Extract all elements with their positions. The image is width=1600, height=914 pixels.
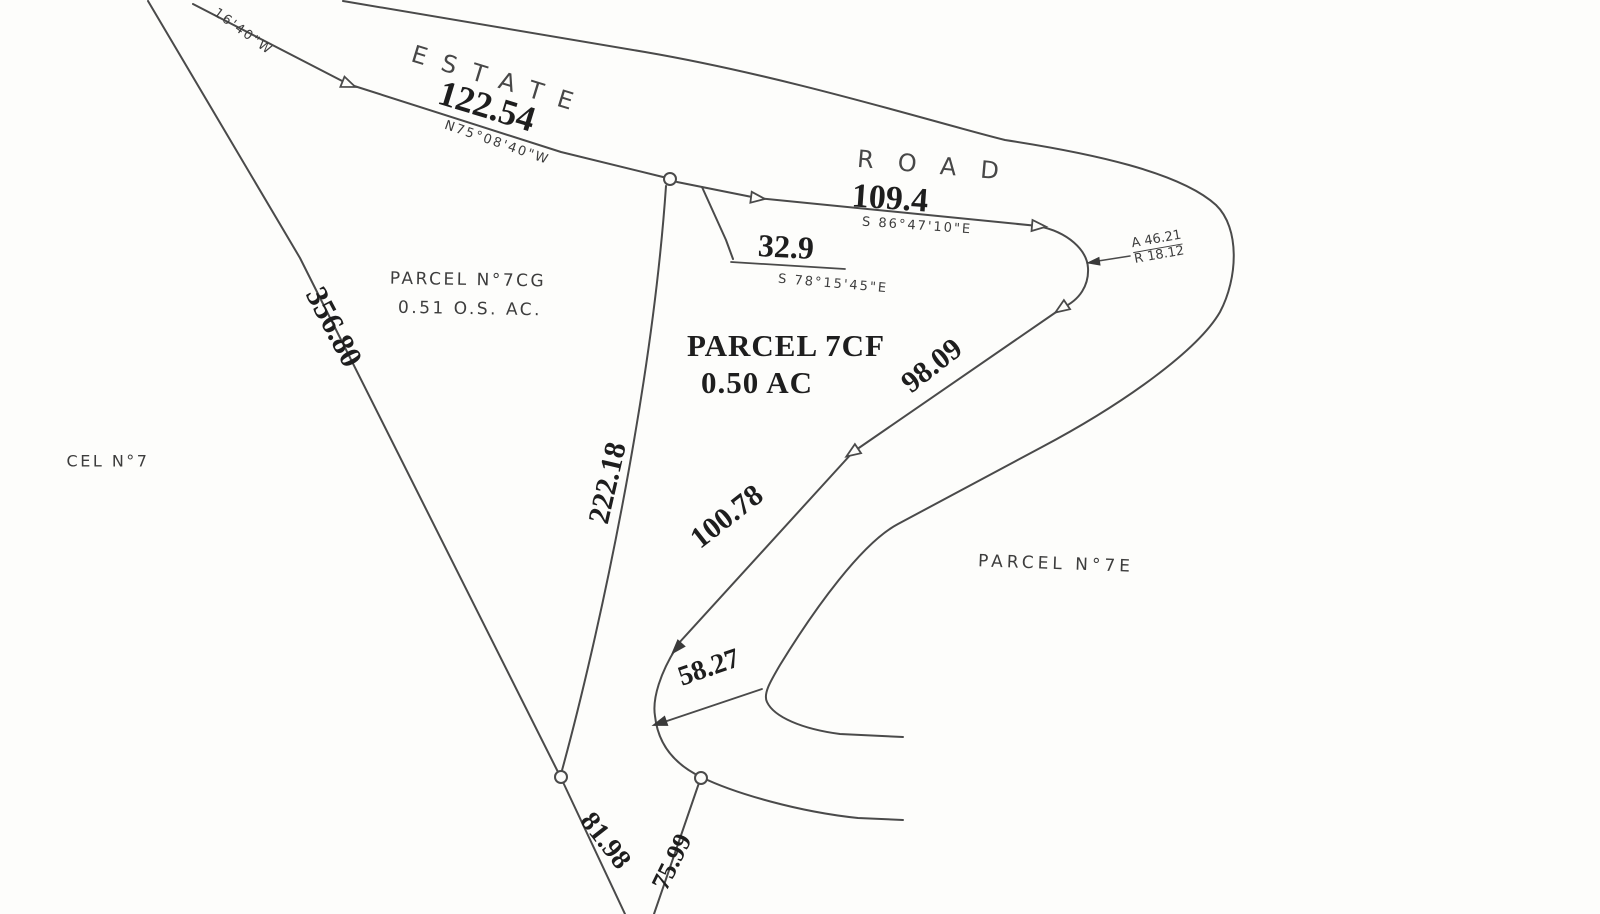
vertex-triangle (1032, 220, 1047, 232)
vertex-triangle (1052, 300, 1070, 317)
jog-line-32-9 (702, 187, 733, 259)
dim-line-58-27 (661, 689, 762, 723)
road-south-edge-122-54 (193, 4, 663, 177)
curve-note-leader (1098, 256, 1130, 261)
vertex-circle (695, 772, 707, 784)
arrowhead-58-27 (650, 716, 669, 732)
dim-32-9: 32.9 (757, 227, 815, 267)
arrowhead-100-78 (667, 639, 686, 658)
survey-plat-drawing: ESTATE ROAD 122.54 N75°08'40"W 16'40"W 1… (0, 0, 1600, 914)
vertex-triangle (750, 192, 765, 205)
parcel-7cf-name: PARCEL 7CF (687, 328, 885, 364)
plat-linework (0, 0, 1600, 914)
parcel-7-partial-name: CEL N°7 (67, 452, 150, 471)
vertex-circle (555, 771, 567, 783)
parcel-7cg-area: 0.51 O.S. AC. (398, 298, 542, 321)
parcel-7cf-area: 0.50 AC (701, 365, 813, 401)
vertex-circle (664, 173, 676, 185)
parcel-7cg-name: PARCEL N°7CG (390, 269, 547, 292)
vertex-triangle (340, 77, 357, 92)
